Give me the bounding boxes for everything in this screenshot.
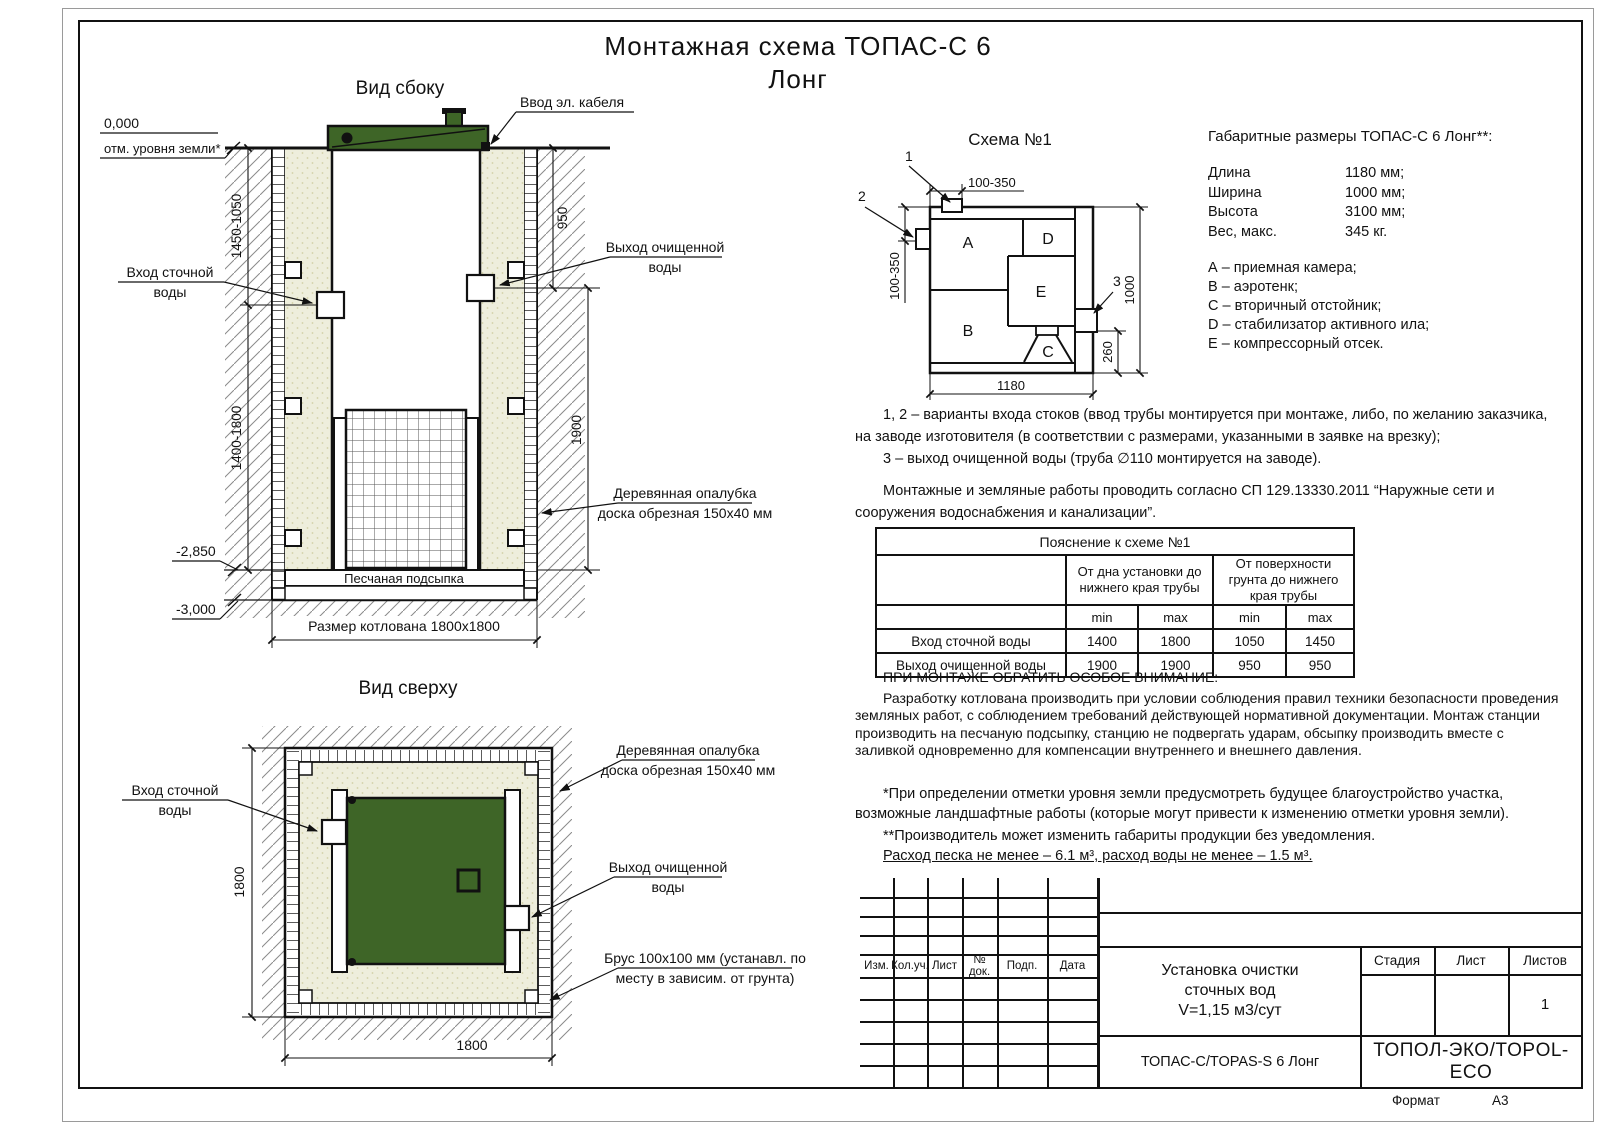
- compartment-d: D: [1042, 231, 1054, 248]
- formwork-label-l1: Деревянная опалубка: [613, 485, 756, 501]
- station-top: [347, 798, 505, 964]
- page-title-line2: Лонг: [598, 63, 998, 96]
- soil-hatch-bottom: [272, 600, 537, 616]
- formwork-label-l2: доска обрезная 150х40 мм: [598, 505, 773, 521]
- side-view-drawing: Вид сбоку Песчаная подсыпк: [100, 78, 772, 648]
- top-formwork-label-l1: Деревянная опалубка: [616, 742, 759, 758]
- schema-inlet-2: [916, 229, 930, 249]
- schema-dim-outlet: 260: [1100, 341, 1115, 363]
- compartment-b: B: [963, 323, 974, 340]
- attention-heading: ПРИ МОНТАЖЕ ОБРАТИТЬ ОСОБОЕ ВНИМАНИЕ:: [855, 669, 1567, 687]
- formwork-right: [524, 148, 537, 588]
- pit-size-label: Размер котлована 1800х1800: [308, 618, 500, 634]
- cable-entry-point: [481, 142, 490, 151]
- explanation-table: Пояснение к схеме №1 От дна установки до…: [875, 527, 1355, 678]
- sand-backfill-left: [285, 148, 332, 588]
- footnote-1: *При определении отметки уровня земли пр…: [855, 784, 1567, 824]
- callout-2: 2: [858, 188, 866, 204]
- inlet-label-l1: Вход сточной: [127, 264, 214, 280]
- attention-block: ПРИ МОНТАЖЕ ОБРАТИТЬ ОСОБОЕ ВНИМАНИЕ: Ра…: [855, 669, 1567, 760]
- attention-body: Разработку котлована производить при усл…: [855, 690, 1567, 760]
- legend-item: Е – компрессорный отсек.: [1208, 335, 1578, 354]
- compartment-a: A: [963, 235, 974, 252]
- sand-backfill-right: [480, 148, 524, 588]
- rev-col-list: Лист: [927, 954, 962, 977]
- top-inlet-label-l1: Вход сточной: [132, 782, 219, 798]
- table-min1: min: [1066, 605, 1138, 629]
- inlet-pipe: [317, 292, 344, 318]
- elev-2850-label: -2,850: [176, 543, 216, 559]
- outlet-pipe: [467, 275, 494, 301]
- clarifier-neck: [1036, 326, 1058, 335]
- top-formwork-label-l2: доска обрезная 150х40 мм: [601, 762, 776, 778]
- rev-col-ndok: № док.: [962, 954, 997, 977]
- format-label: Формат: [1392, 1093, 1440, 1108]
- spec-row-length: Длина1180 мм;: [1208, 164, 1578, 184]
- top-vent-hatch: [458, 870, 479, 891]
- lid-handle: [342, 133, 353, 144]
- outlet-label-l2: воды: [649, 259, 682, 275]
- schema-drawing: Схема №1 A B D E C 1: [858, 130, 1148, 400]
- note-variants: 1, 2 – варианты входа стоков (ввод трубы…: [855, 404, 1561, 448]
- title-block: Изм. Кол.уч. Лист № док. Подп. Дата Уста…: [860, 878, 1582, 1088]
- top-inlet-pipe: [322, 820, 346, 844]
- stage-header: Стадия: [1360, 946, 1434, 974]
- beam-left: [332, 790, 347, 972]
- schema-dim-left: 100-350: [887, 252, 902, 300]
- schema-inlet-1: [942, 199, 962, 212]
- top-outlet-pipe: [505, 906, 529, 930]
- spec-row-weight: Вес, макс.345 кг.: [1208, 223, 1578, 243]
- footnotes-block: *При определении отметки уровня земли пр…: [855, 784, 1567, 866]
- ground-level-label: отм. уровня земли*: [104, 141, 221, 156]
- table-max1: max: [1138, 605, 1213, 629]
- top-dim-height: 1800: [231, 866, 247, 897]
- doc-title: Установка очистки сточных вод V=1,15 м3/…: [1100, 946, 1360, 1035]
- dim-left-upper: 1450-1050: [229, 194, 244, 259]
- rev-col-izm: Изм.: [860, 954, 893, 977]
- spec-row-width: Ширина1000 мм;: [1208, 184, 1578, 204]
- table-group1: От дна установки до нижнего края трубы: [1066, 555, 1213, 605]
- inlet-label-l2: воды: [154, 284, 187, 300]
- top-view-drawing: Вид сверху 1800: [122, 678, 806, 1066]
- notes-block: 1, 2 – варианты входа стоков (ввод трубы…: [855, 404, 1561, 524]
- elev-3000-label: -3,000: [176, 601, 216, 617]
- legend-item: С – вторичный отстойник;: [1208, 297, 1578, 316]
- top-plank-bottom: [287, 1003, 550, 1015]
- note-sp: Монтажные и земляные работы проводить со…: [855, 480, 1561, 524]
- legend-item: А – приемная камера;: [1208, 259, 1578, 278]
- format-value: А3: [1492, 1093, 1509, 1108]
- table-title: Пояснение к схеме №1: [876, 528, 1354, 555]
- dim-right-lower: 1900: [569, 415, 584, 445]
- compartment-e: E: [1036, 284, 1047, 301]
- callout-1: 1: [905, 148, 913, 164]
- rev-col-data: Дата: [1047, 954, 1098, 977]
- sand-bed-label: Песчаная подсыпка: [344, 571, 464, 586]
- schema-dim-height: 1000: [1122, 276, 1137, 305]
- schema-dim-width: 1180: [997, 378, 1025, 393]
- table-max2: max: [1286, 605, 1354, 629]
- support-bar-right: [466, 418, 478, 570]
- sheet-header: Лист: [1434, 946, 1508, 974]
- company-name: ТОПОЛ-ЭКО/TOPOL-ECO: [1360, 1035, 1582, 1088]
- compartment-legend: А – приемная камера; В – аэротенк; С – в…: [1208, 259, 1578, 354]
- side-view-title: Вид сбоку: [356, 78, 445, 99]
- dim-right-upper: 950: [555, 207, 570, 230]
- callout-3: 3: [1113, 273, 1121, 289]
- footnote-2: **Производитель может изменить габариты …: [855, 826, 1567, 846]
- top-view-title: Вид сверху: [359, 678, 458, 699]
- beam-right: [505, 790, 520, 972]
- drawing-sheet: Монтажная схема ТОПАС-С 6 Лонг: [0, 0, 1600, 1131]
- beam-label-l2: месту в зависим. от грунта): [616, 970, 795, 986]
- schema-title: Схема №1: [968, 130, 1052, 149]
- specs-heading: Габаритные размеры ТОПАС-С 6 Лонг**:: [1208, 128, 1578, 145]
- formwork-left: [272, 148, 285, 588]
- tank-base-grid: [346, 410, 466, 568]
- top-dim-width: 1800: [456, 1037, 487, 1053]
- note-outlet: 3 – выход очищенной воды (труба ∅110 мон…: [855, 448, 1561, 470]
- legend-item: D – стабилизатор активного ила;: [1208, 316, 1578, 335]
- top-plank-left: [287, 750, 299, 1015]
- support-bar-left: [334, 418, 346, 570]
- top-plank-right: [538, 750, 550, 1015]
- top-outlet-label-l1: Выход очищенной: [609, 859, 728, 875]
- rev-col-koluch: Кол.уч.: [893, 954, 927, 977]
- specs-block: Габаритные размеры ТОПАС-С 6 Лонг**: Дли…: [1208, 128, 1578, 354]
- legend-item: В – аэротенк;: [1208, 278, 1578, 297]
- rev-col-podp: Подп.: [997, 954, 1047, 977]
- sheets-header: Листов: [1508, 946, 1582, 974]
- top-inlet-label-l2: воды: [159, 802, 192, 818]
- base-band: [285, 586, 524, 600]
- page-title: Монтажная схема ТОПАС-С 6 Лонг: [598, 30, 998, 96]
- dim-left-lower: 1400-1800: [229, 406, 244, 471]
- product-name: ТОПАС-С/TOPAS-S 6 Лонг: [1100, 1035, 1360, 1088]
- beam-label-l1: Брус 100х100 мм (устанавл. по: [604, 950, 806, 966]
- table-min2: min: [1213, 605, 1286, 629]
- compartment-c: C: [1042, 344, 1054, 361]
- cable-entry-label: Ввод эл. кабеля: [520, 94, 624, 110]
- table-group2: От поверхности грунта до нижнего края тр…: [1213, 555, 1354, 605]
- table-row: Вход сточной воды 1400 1800 1050 1450: [876, 629, 1354, 653]
- top-plank-top: [287, 750, 550, 762]
- zero-mark: 0,000: [104, 115, 139, 131]
- outlet-label-l1: Выход очищенной: [606, 239, 725, 255]
- spec-row-height: Высота3100 мм;: [1208, 203, 1578, 223]
- page-title-line1: Монтажная схема ТОПАС-С 6: [598, 30, 998, 63]
- consumption-note: Расход песка не менее – 6.1 м³, расход в…: [855, 846, 1567, 866]
- sheets-value: 1: [1508, 974, 1582, 1035]
- top-outlet-label-l2: воды: [652, 879, 685, 895]
- schema-dim-top: 100-350: [968, 175, 1016, 190]
